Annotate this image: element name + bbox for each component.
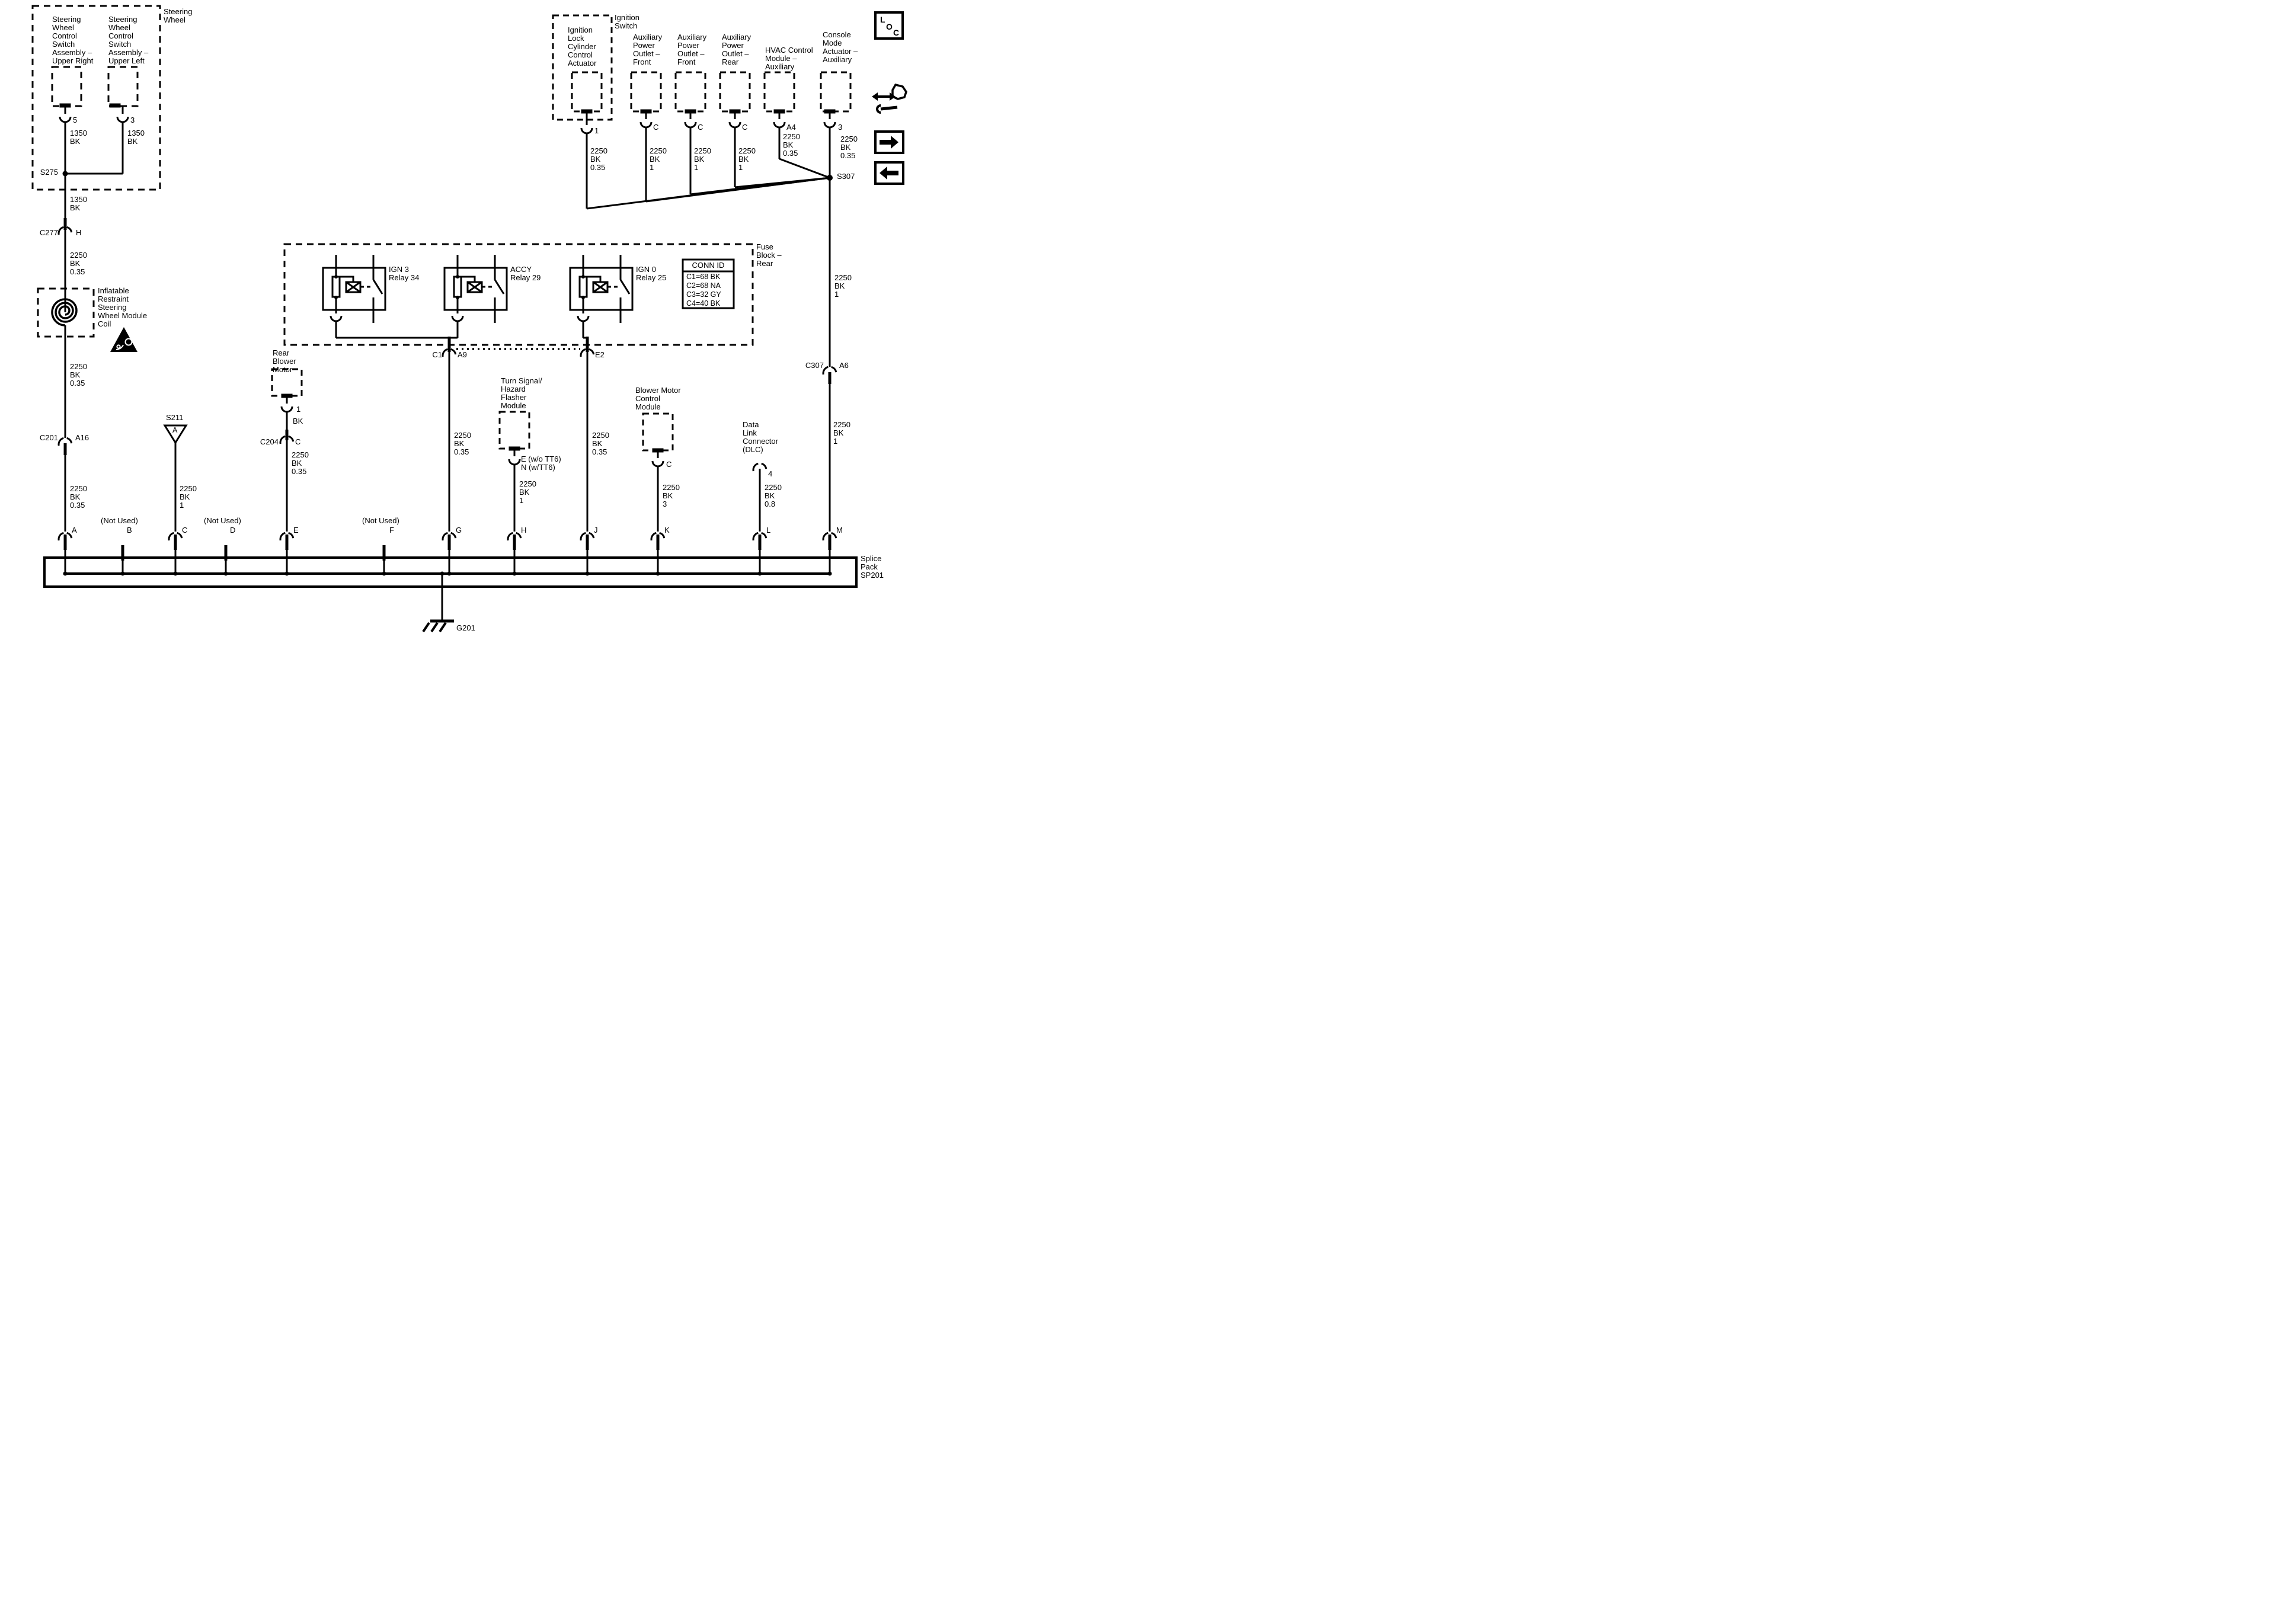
conn-id-row: C2=68 NA	[686, 282, 721, 290]
relay-ign3	[323, 255, 385, 338]
relay-ign3-label: IGN 3 Relay 34	[389, 265, 419, 282]
wiring-diagram-page: Steering Wheel Steering Wheel Control Sw…	[0, 0, 919, 644]
wire-1350-left: 1350 BK	[127, 129, 145, 146]
turn-signal-pins: E (w/o TT6) N (w/TT6)	[521, 455, 561, 472]
console-label: Console Mode Actuator – Auxiliary	[823, 31, 858, 64]
loc-letter-o: O	[886, 22, 893, 31]
c204-pin: C	[295, 438, 300, 446]
terminal-a: A	[72, 526, 77, 534]
steering-wheel-label: Steering Wheel	[164, 8, 192, 24]
splice-pack-label: Splice Pack SP201	[861, 555, 884, 580]
turn-signal-wiring	[509, 447, 520, 532]
wire-terminal-e: 2250 BK 0.35	[292, 451, 309, 476]
s211-splice	[165, 425, 186, 532]
s211-label: S211	[166, 414, 183, 422]
blower-control-wiring	[653, 449, 663, 532]
aux-front-2-pin: C	[698, 123, 703, 132]
turn-signal-label: Turn Signal/ Hazard Flasher Module	[501, 377, 542, 410]
relay-accy	[445, 255, 507, 338]
terminal-f: F	[389, 526, 394, 534]
relay-ign0-label: IGN 0 Relay 25	[636, 265, 666, 282]
ilcca-wire: 2250 BK 0.35	[590, 147, 607, 172]
terminal-c: C	[182, 526, 187, 534]
pin-a16: A16	[75, 434, 89, 442]
c307-pin-a6: A6	[839, 361, 849, 370]
arrow-forward-icon[interactable]	[875, 132, 903, 153]
terminal-e: E	[293, 526, 299, 534]
aux-rear-pin: C	[742, 123, 747, 132]
loc-letter-c: C	[893, 28, 899, 37]
wire-terminal-l: 2250 BK 0.8	[765, 484, 782, 508]
wire-c277-coil: 2250 BK 0.35	[70, 251, 87, 276]
aux-front-1-pin: C	[653, 123, 658, 132]
conn-id-row: C4=40 BK	[686, 300, 720, 308]
e2-label: E2	[595, 351, 605, 359]
console-wire: 2250 BK 0.35	[840, 135, 858, 160]
ignition-switch-label: Ignition Switch	[615, 14, 639, 30]
terminal-j: J	[594, 526, 598, 534]
ilcca-pin: 1	[594, 127, 599, 135]
aux-front-2-label: Auxiliary Power Outlet – Front	[677, 33, 706, 66]
wire-terminal-j: 2250 BK 0.35	[592, 431, 609, 456]
splice-s275-label: S275	[24, 168, 58, 177]
loc-letter-l: L	[880, 15, 885, 24]
terminal-l: L	[766, 526, 770, 534]
conn-id-header: CONN ID	[683, 261, 734, 270]
wire-terminal-a: 2250 BK 0.35	[70, 485, 87, 510]
ground-symbol	[423, 572, 454, 632]
hvac-wire: 2250 BK 0.35	[783, 133, 800, 158]
aux-front-2-wire: 2250 BK 1	[694, 147, 711, 172]
s211-letter: A	[172, 427, 177, 434]
airbag-warning-icon	[110, 327, 137, 352]
s307-label: S307	[837, 172, 855, 181]
wire-terminal-k: 2250 BK 3	[663, 484, 680, 508]
wire-s307-c307: 2250 BK 1	[834, 274, 852, 299]
ignition-lock-actuator-label: Ignition Lock Cylinder Control Actuator	[568, 26, 596, 68]
terminal-m: M	[836, 526, 843, 534]
wire-terminal-c: 2250 BK 1	[180, 485, 197, 510]
not-used-d: (Not Used)	[204, 517, 241, 525]
coil-label: Inflatable Restraint Steering Wheel Modu…	[98, 287, 147, 328]
wire-bk: BK	[293, 417, 303, 425]
hvac-label: HVAC Control Module – Auxiliary	[765, 46, 813, 71]
pin-h: H	[76, 229, 81, 237]
swcs-upper-right-label: Steering Wheel Control Switch Assembly –…	[52, 15, 93, 65]
aux-rear-wire: 2250 BK 1	[738, 147, 756, 172]
c307-connector	[823, 367, 836, 532]
wire-coil-c201: 2250 BK 0.35	[70, 363, 87, 388]
wire-1350-out: 1350 BK	[70, 196, 87, 212]
blower-control-pin: C	[666, 460, 671, 469]
wire-terminal-g: 2250 BK 0.35	[454, 431, 471, 456]
wire-1350-right: 1350 BK	[70, 129, 87, 146]
pin-5: 5	[73, 116, 77, 124]
terminal-d: D	[230, 526, 235, 534]
splice-pack-terminals	[59, 533, 836, 575]
console-pin: 3	[838, 123, 842, 132]
c1-label: C1	[426, 351, 442, 359]
not-used-f: (Not Used)	[362, 517, 399, 525]
terminal-k: K	[664, 526, 670, 534]
blower-control-box	[643, 414, 673, 450]
c307-label: C307	[794, 361, 824, 370]
blower-control-label: Blower Motor Control Module	[635, 386, 681, 411]
ground-g201-label: G201	[456, 624, 475, 632]
turn-signal-box	[500, 412, 529, 449]
aux-rear-label: Auxiliary Power Outlet – Rear	[722, 33, 751, 66]
dlc-label: Data Link Connector (DLC)	[743, 421, 778, 454]
terminal-h: H	[521, 526, 526, 534]
c201-label: C201	[24, 434, 58, 442]
terminal-g: G	[456, 526, 462, 534]
relay-ign0	[570, 255, 632, 338]
rear-blower-label: Rear Blower Motor	[273, 349, 296, 374]
swcs-upper-left-label: Steering Wheel Control Switch Assembly –…	[108, 15, 148, 65]
c277-label: C277	[24, 229, 58, 237]
not-used-b: (Not Used)	[101, 517, 138, 525]
relay-accy-label: ACCY Relay 29	[510, 265, 541, 282]
dlc-pin: 4	[768, 470, 772, 478]
wire-terminal-m: 2250 BK 1	[833, 421, 850, 446]
conn-id-row: C1=68 BK	[686, 273, 720, 281]
hvac-pin: A4	[786, 123, 796, 132]
conn-id-row: C3=32 GY	[686, 291, 721, 299]
arrow-back-icon[interactable]	[875, 162, 903, 184]
aux-front-1-label: Auxiliary Power Outlet – Front	[633, 33, 662, 66]
rear-blower-pin: 1	[296, 405, 300, 414]
wire-terminal-h: 2250 BK 1	[519, 480, 536, 505]
fuse-block-label: Fuse Block – Rear	[756, 243, 782, 268]
c204-label: C204	[249, 438, 279, 446]
aux-front-1-wire: 2250 BK 1	[650, 147, 667, 172]
c1-pin-a9: A9	[458, 351, 467, 359]
pin-3: 3	[130, 116, 135, 124]
service-programming-icon	[872, 85, 906, 113]
terminal-b: B	[127, 526, 132, 534]
